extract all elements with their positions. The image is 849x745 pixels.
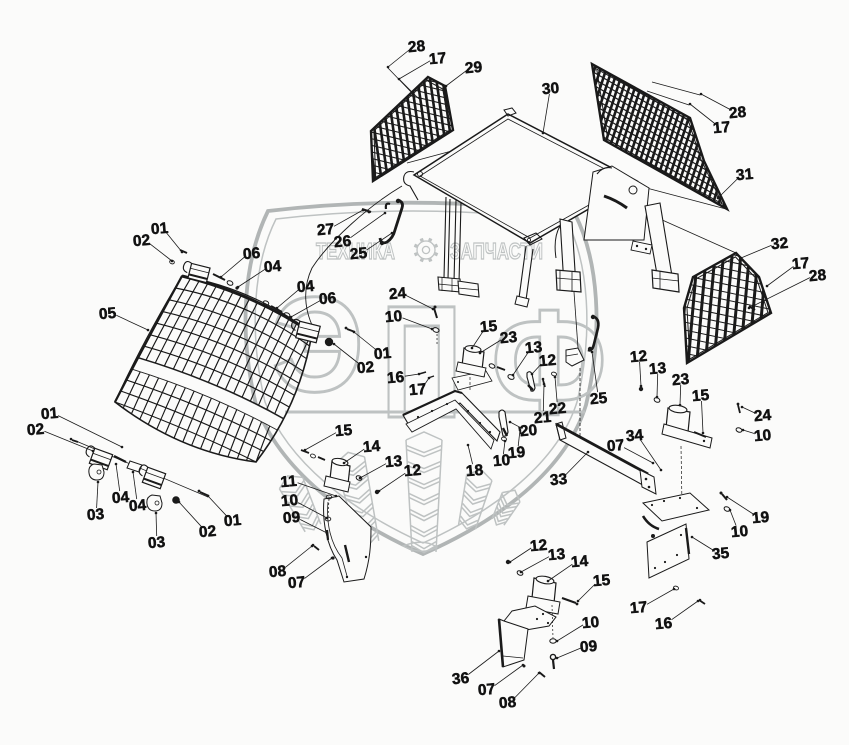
- svg-text:16: 16: [654, 615, 673, 633]
- svg-text:14: 14: [362, 438, 381, 456]
- svg-text:32: 32: [770, 235, 789, 253]
- svg-text:11: 11: [280, 473, 298, 491]
- svg-text:17: 17: [712, 119, 731, 137]
- svg-text:01: 01: [223, 512, 242, 530]
- svg-text:24: 24: [753, 407, 772, 425]
- svg-text:17: 17: [428, 50, 447, 68]
- svg-text:15: 15: [592, 572, 611, 590]
- svg-text:25: 25: [589, 390, 608, 408]
- svg-text:04: 04: [296, 278, 315, 296]
- svg-text:15: 15: [691, 387, 710, 405]
- svg-text:03: 03: [147, 534, 166, 552]
- svg-text:30: 30: [541, 80, 560, 98]
- svg-text:04: 04: [263, 258, 282, 276]
- svg-text:02: 02: [26, 421, 45, 439]
- svg-text:07: 07: [606, 437, 625, 455]
- svg-text:33: 33: [549, 471, 568, 489]
- svg-text:22: 22: [548, 400, 567, 418]
- svg-text:15: 15: [334, 422, 353, 440]
- svg-text:12: 12: [629, 348, 648, 366]
- svg-text:18: 18: [465, 462, 484, 480]
- svg-text:25: 25: [349, 245, 368, 263]
- svg-text:10: 10: [753, 427, 772, 445]
- svg-text:28: 28: [407, 38, 426, 56]
- svg-text:17: 17: [408, 381, 427, 399]
- svg-text:10: 10: [581, 614, 600, 632]
- svg-text:08: 08: [268, 563, 287, 581]
- svg-text:12: 12: [403, 462, 422, 480]
- svg-text:14: 14: [570, 553, 589, 571]
- svg-text:10: 10: [492, 452, 511, 470]
- svg-text:06: 06: [318, 290, 337, 308]
- svg-text:08: 08: [498, 694, 517, 712]
- svg-text:19: 19: [751, 509, 770, 527]
- svg-text:17: 17: [791, 255, 810, 273]
- svg-text:27: 27: [316, 221, 335, 239]
- svg-text:15: 15: [479, 318, 498, 336]
- svg-text:10: 10: [730, 523, 749, 541]
- svg-text:01: 01: [150, 220, 169, 238]
- svg-text:09: 09: [579, 638, 598, 656]
- svg-text:28: 28: [728, 104, 747, 122]
- svg-text:13: 13: [384, 453, 403, 471]
- svg-text:29: 29: [464, 59, 483, 77]
- svg-text:03: 03: [86, 506, 105, 524]
- svg-text:09: 09: [282, 509, 301, 527]
- svg-text:02: 02: [198, 523, 217, 541]
- svg-text:13: 13: [648, 360, 667, 378]
- svg-text:23: 23: [499, 329, 518, 347]
- svg-text:23: 23: [671, 371, 690, 389]
- svg-text:07: 07: [477, 681, 496, 699]
- svg-text:35: 35: [711, 545, 730, 563]
- svg-text:07: 07: [287, 574, 306, 592]
- svg-text:34: 34: [625, 427, 644, 445]
- svg-text:02: 02: [132, 232, 151, 250]
- svg-text:19: 19: [507, 444, 526, 462]
- svg-text:24: 24: [388, 285, 407, 303]
- svg-text:36: 36: [451, 670, 470, 688]
- svg-text:10: 10: [280, 492, 299, 510]
- svg-text:31: 31: [735, 166, 754, 184]
- svg-text:28: 28: [808, 267, 827, 285]
- svg-text:04: 04: [128, 497, 147, 515]
- svg-text:12: 12: [538, 352, 557, 370]
- svg-text:13: 13: [547, 546, 566, 564]
- svg-text:05: 05: [98, 305, 117, 323]
- svg-text:17: 17: [629, 599, 648, 617]
- svg-text:16: 16: [386, 369, 405, 387]
- svg-text:12: 12: [529, 537, 548, 555]
- svg-text:10: 10: [384, 308, 403, 326]
- svg-text:02: 02: [356, 359, 375, 377]
- svg-text:06: 06: [242, 245, 261, 263]
- svg-text:01: 01: [373, 345, 392, 363]
- svg-text:20: 20: [519, 422, 538, 440]
